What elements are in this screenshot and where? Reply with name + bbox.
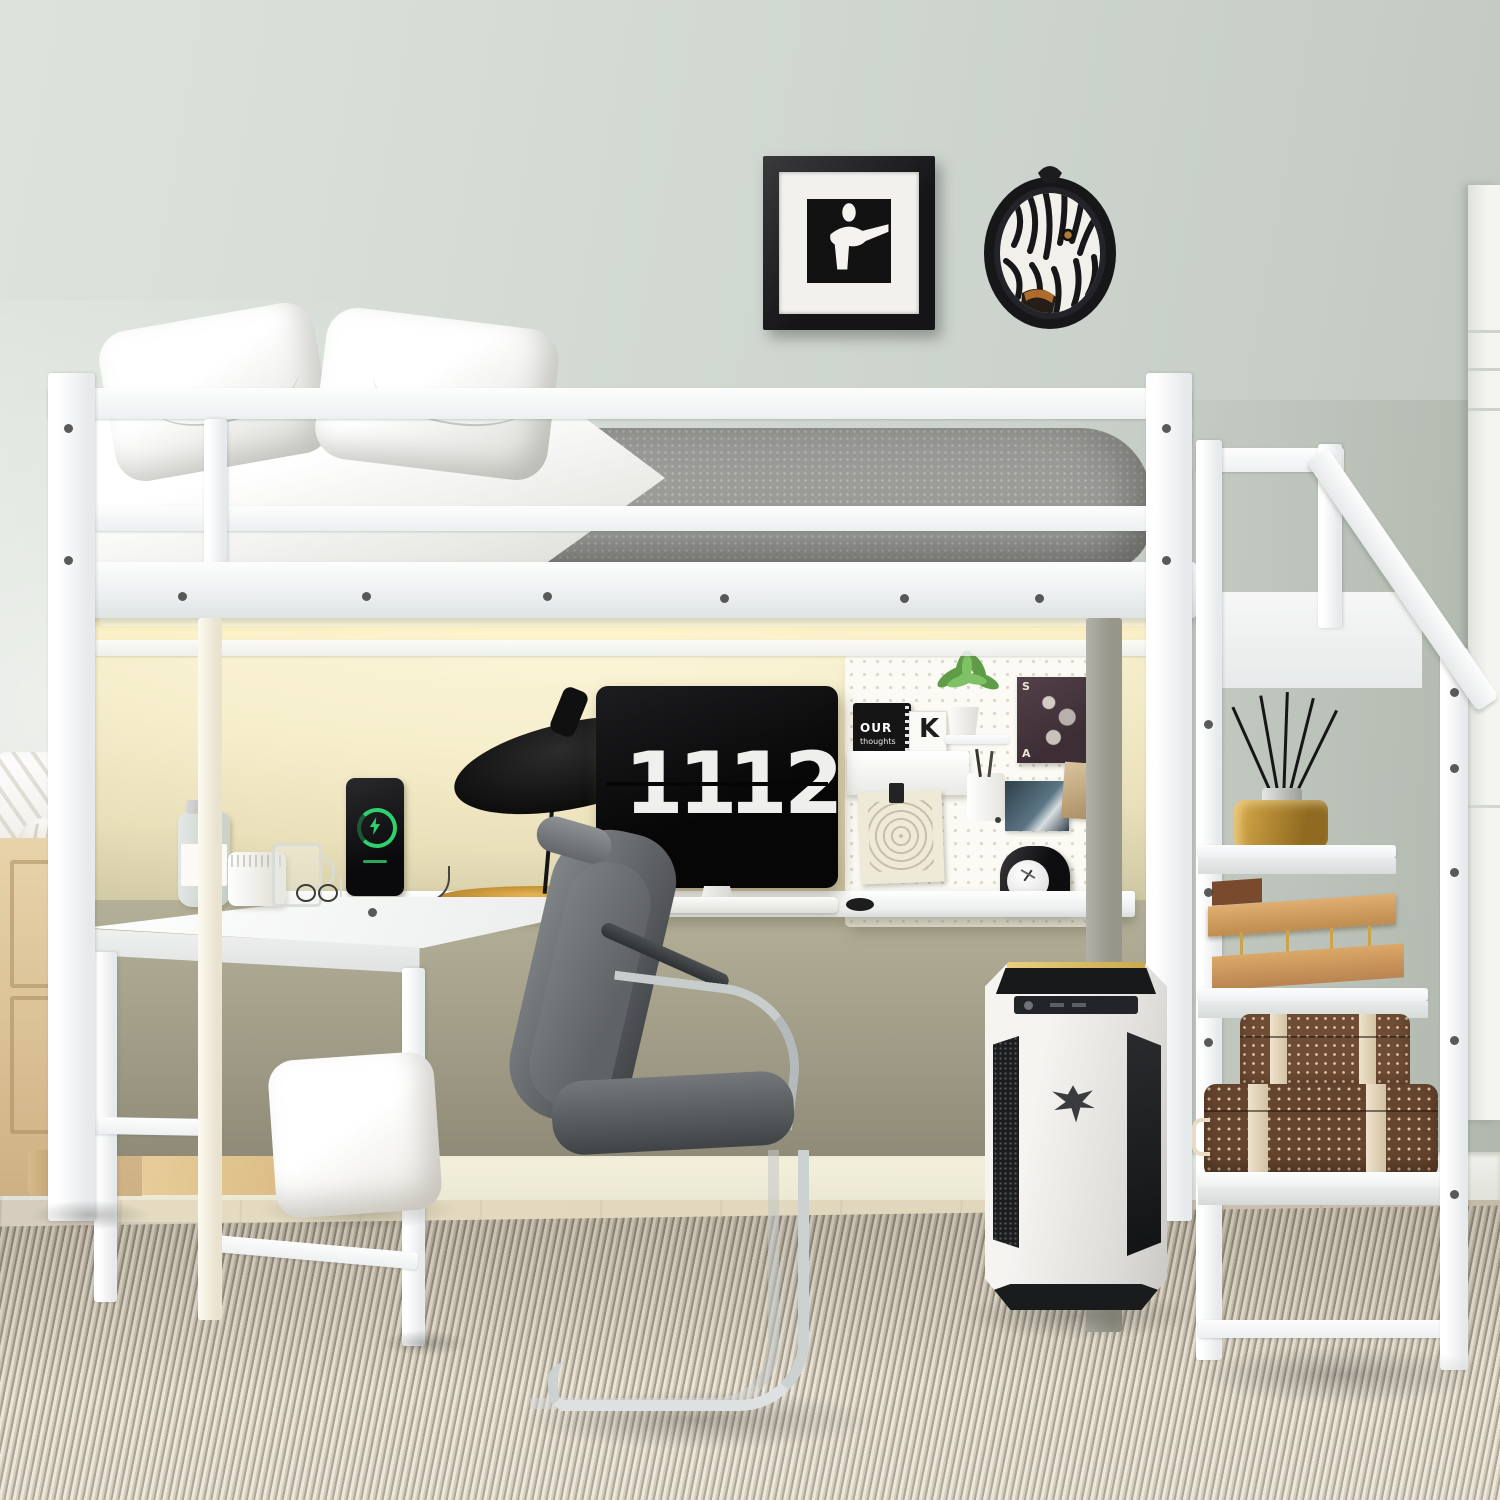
pc-front-io — [1014, 996, 1138, 1014]
oval-zebra-frame — [980, 165, 1120, 333]
diffuser-jar — [1234, 800, 1328, 848]
suitcase-strap — [1248, 1084, 1268, 1178]
keyboard — [652, 897, 838, 913]
model-pin — [1240, 932, 1243, 956]
pc-usb-port — [1072, 1003, 1086, 1007]
pc-left-vent — [993, 1036, 1019, 1248]
suitcase-lid-seam — [1204, 1110, 1438, 1112]
pen — [987, 751, 993, 777]
floor-cushion — [267, 1050, 444, 1219]
pegboard-pen-cup — [967, 773, 1005, 821]
wardrobe-slat — [1468, 408, 1500, 411]
pc-power-button — [1024, 1001, 1033, 1010]
pc-tower — [985, 962, 1167, 1310]
stair-screw — [1450, 1190, 1459, 1199]
bed-post-shadow — [30, 1200, 150, 1230]
stair-screw — [1204, 1038, 1213, 1047]
pegboard-tray — [847, 751, 969, 795]
stairs-shelf-top-edge — [1198, 858, 1396, 874]
chair-runner-upturn — [548, 1362, 580, 1410]
pegboard-hanging-paper — [857, 790, 944, 885]
stair-screw — [1450, 764, 1459, 773]
desk-leg-shadow — [380, 1330, 470, 1356]
clock-hand-minute — [1021, 869, 1036, 879]
eyeglasses — [296, 884, 340, 900]
bed-post-left — [48, 373, 95, 1221]
wardrobe-slat — [1468, 805, 1500, 808]
deck-screw — [543, 592, 552, 601]
glasses-lens — [296, 884, 316, 902]
flip-split-line — [606, 782, 828, 786]
desk-screw — [368, 908, 377, 917]
tuf-logo — [1047, 1080, 1099, 1132]
pc-right-window — [1127, 1032, 1161, 1256]
deck-screw — [178, 592, 187, 601]
room-scene: OUR thoughts K T S A A E — [0, 0, 1500, 1500]
letter-card-k: K — [919, 714, 939, 744]
wardrobe-slat — [1468, 368, 1500, 371]
white-wardrobe-edge — [1468, 185, 1500, 1120]
chair-seat — [550, 1070, 796, 1157]
stairs-shadow — [1190, 1345, 1490, 1405]
suitcase-handle — [1192, 1118, 1210, 1156]
collage-letter: A — [1022, 747, 1031, 760]
wardrobe-slat — [1468, 330, 1500, 333]
paper-mandala — [868, 800, 934, 872]
zebra-art — [980, 165, 1120, 333]
guardrail-top — [48, 388, 1192, 419]
reed — [1282, 692, 1289, 802]
bed-post-mid-left — [198, 618, 222, 1320]
suitcase-small — [1240, 1014, 1410, 1092]
deck-screw — [362, 592, 371, 601]
chair-cantilever-frame — [560, 1150, 809, 1411]
stair-screw — [1204, 720, 1213, 729]
pegboard-pin — [995, 817, 1001, 823]
stair-screw — [1450, 688, 1459, 697]
suitcase-strap — [1270, 1014, 1287, 1092]
suitcase-lid-seam — [1240, 1036, 1410, 1038]
headboard-slat — [204, 419, 227, 564]
abstract-figure-art — [807, 198, 891, 284]
deck-screw — [1035, 594, 1044, 603]
mouse — [846, 898, 874, 911]
bed-deck-rail — [80, 562, 1196, 618]
stairs-shelf-mid — [1198, 988, 1428, 1001]
guardrail-lower — [95, 506, 1151, 531]
post-screw — [64, 424, 73, 433]
notebook-subtitle: thoughts — [860, 737, 896, 746]
stair-screw — [1450, 1036, 1459, 1045]
stairs-bottom-step — [1198, 1320, 1462, 1338]
collage-letter: S — [1022, 680, 1030, 693]
post-screw — [64, 556, 73, 565]
stairs-right-stringer — [1440, 648, 1468, 1370]
stairs-shelf-top — [1198, 845, 1396, 858]
pc-usb-port — [1050, 1003, 1064, 1007]
suitcase-large — [1204, 1084, 1438, 1178]
stairs-shelf-bottom-edge — [1198, 1187, 1458, 1205]
square-picture-frame — [763, 156, 935, 330]
lightning-bolt-icon — [367, 816, 383, 836]
charging-text-line — [363, 860, 387, 863]
pegboard-ocean-photo — [1005, 781, 1069, 831]
deck-screw — [720, 594, 729, 603]
pc-top-warm-edge — [1007, 962, 1145, 968]
post-screw — [1162, 556, 1171, 565]
pegboard-plant-leaves — [927, 651, 1007, 713]
pc-bottom-chamfer — [985, 1284, 1167, 1310]
glasses-lens — [318, 884, 338, 902]
stair-screw — [1204, 888, 1213, 897]
collage-cutouts — [1035, 691, 1081, 749]
stairs-shelf-bottom — [1198, 1172, 1458, 1187]
underbed-support-rail — [95, 640, 1151, 656]
pen — [975, 749, 982, 777]
stair-screw — [1450, 868, 1459, 877]
model-dark-block — [1212, 878, 1262, 905]
binder-clip — [889, 783, 904, 803]
picture-mat — [779, 172, 919, 314]
suitcase-strap — [1359, 1014, 1376, 1092]
post-screw — [1162, 424, 1171, 433]
suitcase-strap — [1366, 1084, 1386, 1178]
stairs-upper-panel — [1196, 592, 1422, 688]
deck-screw — [900, 594, 909, 603]
pegboard-mid-shelf — [945, 735, 1009, 744]
notebook-title: OUR — [860, 721, 892, 735]
pc-top-mesh — [996, 968, 1156, 994]
